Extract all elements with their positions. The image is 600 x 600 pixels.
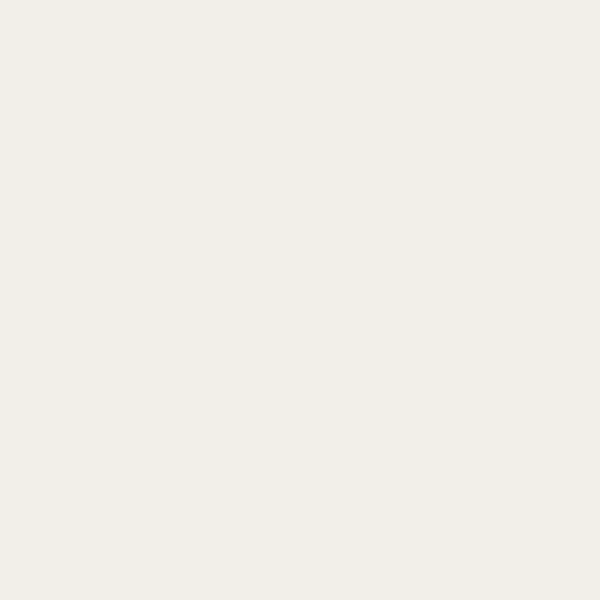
map-viewport[interactable] [0,0,600,600]
map-canvas[interactable] [0,0,600,600]
